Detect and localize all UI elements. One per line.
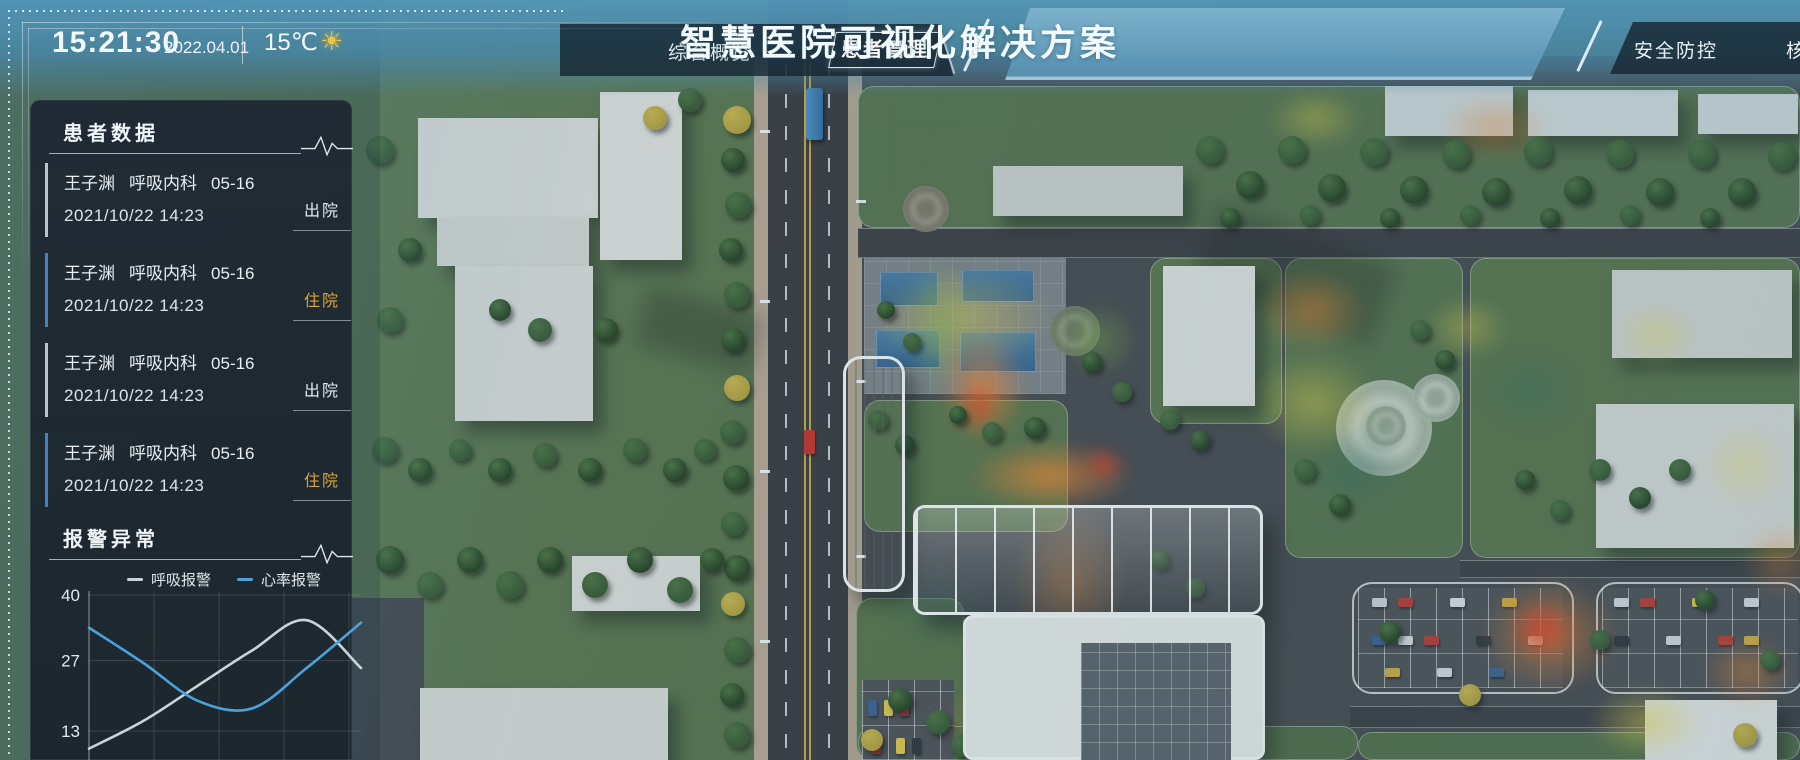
tree [1646,178,1674,206]
tree [417,572,443,598]
car [1450,598,1465,607]
tree [623,438,647,462]
tree [926,710,950,734]
tree [1318,174,1346,202]
tree [1629,487,1651,509]
tree [667,577,693,603]
tab-security-control[interactable]: 安全防控 [1634,36,1718,63]
patient-row[interactable]: 王子渊呼吸内科05-16 2021/10/22 14:23 出院 [45,343,353,417]
svg-text:40: 40 [61,586,80,605]
patient-name: 王子渊 [64,264,115,283]
tree [1082,352,1102,372]
streetlight [856,200,866,203]
tree [1524,138,1552,166]
car [1398,636,1413,645]
patient-row[interactable]: 王子渊呼吸内科05-16 2021/10/22 14:23 住院 [45,253,353,327]
tree [408,458,432,482]
tree [1294,459,1316,481]
tree [723,106,751,134]
streetlight [760,640,770,643]
heatmap-blob [1082,446,1126,482]
tree [449,439,471,461]
tree [1379,621,1401,643]
tree [1460,205,1480,225]
tree [1564,176,1592,204]
tree [578,458,602,482]
tree [724,722,750,748]
alarm-panel-title: 报警异常 [63,523,159,552]
tree [1300,205,1320,225]
building [420,688,668,760]
nav-band-right: 安全防控 核 [1610,22,1800,74]
road-lane-dash [785,62,787,760]
tree [694,439,716,461]
tree [1620,205,1640,225]
building [418,118,598,218]
tree [1160,410,1180,430]
decor-frame-line [22,22,23,282]
tree [721,328,745,352]
section-underline [49,559,301,560]
tree [719,238,743,262]
tree [1540,208,1560,228]
patient-name: 王子渊 [64,174,115,193]
streetlight [760,470,770,473]
car [912,738,921,754]
tree [533,443,557,467]
building [1163,266,1255,406]
tab-truncated[interactable]: 核 [1786,36,1800,63]
tree [1700,208,1720,228]
tree [903,333,921,351]
patient-bed: 05-16 [211,174,254,193]
tree [721,512,745,536]
patient-status-badge[interactable]: 出院 [293,197,351,231]
tree [720,683,744,707]
patient-status-badge[interactable]: 出院 [293,377,351,411]
building-highlighted-podium [963,615,1265,760]
tree [720,420,744,444]
patient-bed: 05-16 [211,354,254,373]
heatmap-blob [1700,420,1790,510]
tree [1768,142,1796,170]
tree [496,571,524,599]
patient-department: 呼吸内科 [129,264,197,283]
tree [1410,320,1430,340]
heatmap-blob [1480,350,1580,430]
tree [721,592,745,616]
patient-info: 王子渊呼吸内科05-16 [64,439,353,464]
streetlight [760,300,770,303]
tree [877,301,895,319]
tree [663,458,687,482]
decor-frame-line [28,28,688,29]
building [993,166,1183,216]
patient-bed: 05-16 [211,264,254,283]
patient-info: 王子渊呼吸内科05-16 [64,349,353,374]
tree [724,282,750,308]
tree [1400,176,1428,204]
tree [724,555,750,581]
svg-text:13: 13 [61,722,80,741]
tree [1669,459,1691,481]
tree [1688,140,1716,168]
tree [1112,382,1132,402]
tree [724,637,750,663]
tree [594,318,618,342]
heatmap-blob [1612,300,1702,370]
tree [949,406,967,424]
tree [721,148,745,172]
car [1398,598,1413,607]
tree [724,375,750,401]
tree [398,238,422,262]
car [896,738,905,754]
alarm-line-chart: 402713 [55,583,365,760]
heatmap-blob [1255,268,1370,353]
tree [1733,723,1757,747]
car [1744,598,1759,607]
tree [700,548,724,572]
tree [1278,136,1306,164]
tree [488,458,512,482]
tree [366,136,394,164]
patient-row[interactable]: 王子渊呼吸内科05-16 2021/10/22 14:23 住院 [45,433,353,507]
bus [806,88,823,140]
car [1614,598,1629,607]
car [1385,668,1400,677]
decor-frame-line [22,22,712,23]
tree [528,318,552,342]
patient-department: 呼吸内科 [129,174,197,193]
car [1437,668,1452,677]
patient-bed: 05-16 [211,444,254,463]
tree [1606,140,1634,168]
tree [1442,140,1470,168]
tree [1190,430,1210,450]
smart-hospital-dashboard: 15:21:30 2022.04.01 15℃ ☀ 综合概览 患者管理 智慧医院… [0,0,1800,760]
patient-info: 王子渊呼吸内科05-16 [64,259,353,284]
clock-time: 15:21:30 [52,26,180,60]
fountain-circle [903,186,949,232]
tree [377,307,403,333]
patient-panel-title: 患者数据 [63,117,159,146]
svg-text:27: 27 [61,651,80,670]
building [437,218,589,266]
road-lane-dash [828,62,830,760]
road-center-line [804,62,806,760]
legend-swatch-breath [127,578,143,581]
tree [1380,208,1400,228]
patient-status-badge[interactable]: 住院 [293,467,351,501]
road-center-line [809,62,811,760]
patient-info: 王子渊呼吸内科05-16 [64,169,353,194]
tree [1220,208,1240,228]
tree [678,88,702,112]
tree [457,547,483,573]
patient-department: 呼吸内科 [129,354,197,373]
legend-swatch-heart [237,578,253,581]
tree [1695,590,1715,610]
tree [1760,650,1780,670]
tree [982,422,1002,442]
patient-row[interactable]: 王子渊呼吸内科05-16 2021/10/22 14:23 出院 [45,163,353,237]
patient-name: 王子渊 [64,354,115,373]
tree [1360,138,1388,166]
car [1640,598,1655,607]
tree [1459,684,1481,706]
tree [1024,417,1046,439]
patient-data-panel: 患者数据 王子渊呼吸内科05-16 2021/10/22 14:23 出院 王子… [30,100,352,760]
car [1372,598,1387,607]
tree [723,465,749,491]
building-highlighted-tower [843,356,905,592]
section-underline [49,153,301,154]
building-roof-grid [1081,643,1231,760]
decor-dotted-line-left [8,10,10,758]
car [868,700,877,716]
tree [537,547,563,573]
tree [1236,171,1264,199]
heatmap-blob [1588,686,1703,758]
sun-icon: ☀ [320,26,343,57]
tree [1550,500,1570,520]
building [455,266,593,421]
patient-department: 呼吸内科 [129,444,197,463]
clock-date: 2022.04.01 [164,38,249,58]
tree [1728,178,1756,206]
tree [643,106,667,130]
streetlight [760,130,770,133]
tree [627,547,653,573]
building [600,92,682,260]
decor-dotted-line-top [8,10,564,12]
car [804,430,815,454]
tree [1196,136,1224,164]
pulse-icon [301,539,353,569]
building [1698,94,1798,134]
tree [372,437,398,463]
car [1424,636,1439,645]
heatmap-blob [1425,295,1510,360]
patient-name: 王子渊 [64,444,115,463]
fountain-circle [1412,374,1460,422]
patient-status-badge[interactable]: 住院 [293,287,351,321]
building-highlighted-main [913,505,1263,615]
tree [861,729,883,751]
tree [1590,630,1610,650]
header-divider [242,26,243,64]
tree [582,572,608,598]
tree [1329,494,1351,516]
pulse-icon [301,131,353,161]
heatmap-blob [1508,598,1576,660]
tree [1482,178,1510,206]
tree [725,192,751,218]
heatmap-blob [1700,636,1795,708]
decor-frame-line [28,28,29,278]
tree [1589,459,1611,481]
temperature-value: 15℃ [264,28,318,57]
tree [1515,470,1535,490]
tree [888,688,912,712]
tree [1435,350,1455,370]
heatmap-blob [1300,430,1410,515]
tree [489,299,511,321]
car [1666,636,1681,645]
tree [376,546,404,574]
